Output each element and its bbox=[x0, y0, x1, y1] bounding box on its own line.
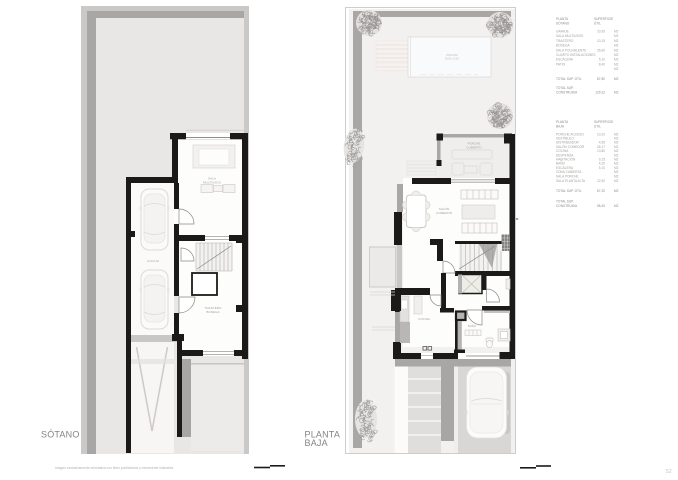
svg-text:SALA PORCHE: SALA PORCHE bbox=[556, 174, 579, 178]
svg-text:COMEDOR: COMEDOR bbox=[436, 211, 453, 215]
svg-text:M2: M2 bbox=[614, 174, 619, 178]
svg-text:10,15: 10,15 bbox=[597, 39, 605, 43]
svg-text:PLANTA: PLANTA bbox=[556, 17, 569, 21]
svg-text:BAÑO: BAÑO bbox=[468, 323, 477, 328]
svg-text:PATIO: PATIO bbox=[556, 62, 566, 66]
svg-text:GARAJE: GARAJE bbox=[147, 259, 159, 263]
svg-text:M2: M2 bbox=[614, 204, 619, 208]
svg-text:8,00 x 3,00: 8,00 x 3,00 bbox=[445, 57, 459, 61]
svg-text:ESCALERA: ESCALERA bbox=[556, 58, 574, 62]
svg-text:CONSTRUIDA: CONSTRUIDA bbox=[556, 204, 578, 208]
svg-text:CUBIERTO: CUBIERTO bbox=[466, 146, 482, 150]
svg-text:GARAJE: GARAJE bbox=[556, 30, 569, 34]
svg-text:BAJA: BAJA bbox=[556, 125, 565, 129]
svg-text:MULTIUSOS: MULTIUSOS bbox=[203, 181, 221, 185]
svg-text:M2: M2 bbox=[614, 34, 619, 38]
svg-text:TRASTERO: TRASTERO bbox=[556, 39, 574, 43]
svg-text:52: 52 bbox=[666, 469, 672, 475]
svg-text:SUPERFICIE: SUPERFICIE bbox=[594, 120, 613, 124]
svg-text:BAJA: BAJA bbox=[305, 438, 328, 448]
svg-text:67,20: 67,20 bbox=[597, 189, 605, 193]
svg-text:8,40: 8,40 bbox=[599, 62, 605, 66]
svg-text:13,80: 13,80 bbox=[597, 149, 605, 153]
svg-text:M2: M2 bbox=[614, 30, 619, 34]
svg-text:M2: M2 bbox=[614, 179, 619, 183]
svg-text:M2: M2 bbox=[614, 91, 619, 95]
svg-text:BODEGA: BODEGA bbox=[556, 44, 571, 48]
svg-text:SÓTANO: SÓTANO bbox=[41, 430, 80, 440]
svg-text:CONSTRUIDA: CONSTRUIDA bbox=[556, 91, 578, 95]
svg-text:M2: M2 bbox=[614, 58, 619, 62]
svg-text:96,40: 96,40 bbox=[597, 204, 605, 208]
svg-text:Imagen exclusivamente orientat: Imagen exclusivamente orientativa con fi… bbox=[55, 466, 173, 470]
svg-text:20,95: 20,95 bbox=[597, 30, 605, 34]
svg-text:M2: M2 bbox=[614, 77, 619, 81]
svg-text:5,10: 5,10 bbox=[599, 58, 605, 62]
svg-text:M2: M2 bbox=[614, 67, 619, 71]
svg-text:ÚTIL: ÚTIL bbox=[594, 124, 601, 129]
svg-text:BODEGA: BODEGA bbox=[206, 310, 220, 314]
svg-text:TOTAL SUP. ÚTIL: TOTAL SUP. ÚTIL bbox=[556, 188, 582, 193]
svg-text:M2: M2 bbox=[614, 189, 619, 193]
svg-text:SUPERFICIE: SUPERFICIE bbox=[594, 17, 613, 21]
svg-text:SÓTANO: SÓTANO bbox=[556, 21, 570, 26]
svg-text:M2: M2 bbox=[614, 44, 619, 48]
svg-text:ÚTIL: ÚTIL bbox=[594, 21, 601, 26]
svg-text:5,10: 5,10 bbox=[599, 166, 605, 170]
svg-text:TOTAL SUP.: TOTAL SUP. bbox=[556, 86, 574, 90]
svg-text:M2: M2 bbox=[614, 39, 619, 43]
svg-text:SALA PLANTA ALTA: SALA PLANTA ALTA bbox=[556, 179, 586, 183]
svg-text:CUARTO INSTALACIONES: CUARTO INSTALACIONES bbox=[556, 53, 596, 57]
svg-text:SALA POLIVALENTE: SALA POLIVALENTE bbox=[556, 48, 586, 52]
svg-text:M2: M2 bbox=[614, 62, 619, 66]
svg-text:M2: M2 bbox=[614, 48, 619, 52]
svg-text:129,22: 129,22 bbox=[595, 91, 605, 95]
svg-text:10,20: 10,20 bbox=[597, 132, 605, 136]
svg-text:COCINA: COCINA bbox=[418, 317, 431, 321]
svg-text:SALA MULTIUSOS: SALA MULTIUSOS bbox=[556, 34, 583, 38]
svg-text:87,80: 87,80 bbox=[597, 77, 605, 81]
svg-text:TOTAL SUP. ÚTIL: TOTAL SUP. ÚTIL bbox=[556, 76, 582, 81]
svg-text:PLANTA: PLANTA bbox=[556, 120, 569, 124]
svg-text:35,60: 35,60 bbox=[597, 48, 605, 52]
svg-text:22,50: 22,50 bbox=[597, 179, 605, 183]
svg-text:M2: M2 bbox=[614, 53, 619, 57]
